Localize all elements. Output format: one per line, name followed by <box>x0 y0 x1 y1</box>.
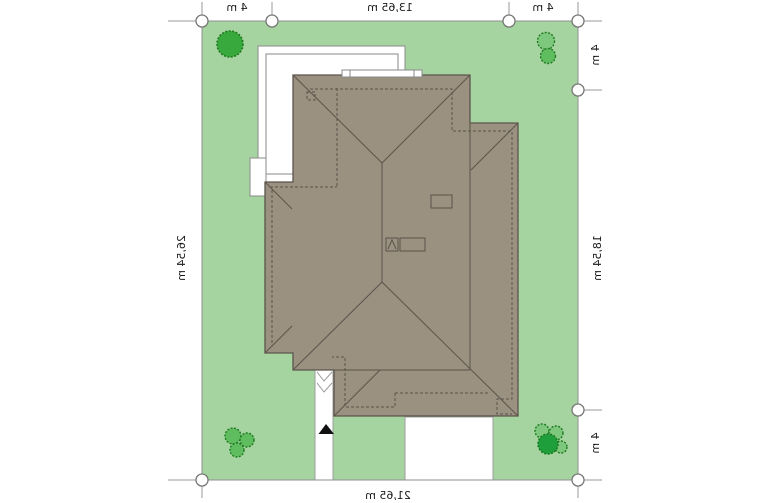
survey-marker <box>196 15 208 27</box>
tree-top-left <box>217 31 243 57</box>
dim-right-bottom: 4 m <box>588 401 604 485</box>
site-plan: 4 m 13,65 m 4 m 4 m 18,54 m 4 m 26,54 m … <box>0 0 780 503</box>
chimney-2 <box>400 238 425 251</box>
driveway-path <box>405 417 493 480</box>
dim-top-right: 4 m <box>501 0 585 16</box>
dim-right-top: 4 m <box>588 13 604 97</box>
survey-marker <box>266 15 278 27</box>
bush <box>541 49 556 64</box>
dim-bottom: 21,65 m <box>346 488 430 503</box>
terrace-side-steps <box>250 158 266 196</box>
chimney-1 <box>431 195 452 208</box>
walkway-path <box>315 370 333 480</box>
survey-marker <box>572 404 584 416</box>
dim-top-left: 4 m <box>195 0 279 16</box>
bush <box>538 33 555 50</box>
bush <box>240 433 254 447</box>
survey-marker <box>572 474 584 486</box>
dim-right-middle: 18,54 m <box>590 216 606 300</box>
survey-marker <box>572 84 584 96</box>
top-railing <box>342 70 422 77</box>
dim-left: 26,54 m <box>174 216 190 300</box>
survey-marker <box>503 15 515 27</box>
dim-top-middle: 13,65 m <box>348 0 432 16</box>
bush <box>225 428 241 444</box>
survey-marker <box>196 474 208 486</box>
bush <box>230 443 244 457</box>
bush-dark <box>538 434 558 454</box>
railing-bar <box>342 70 422 77</box>
site-plan-drawing <box>0 0 780 503</box>
survey-marker <box>572 15 584 27</box>
